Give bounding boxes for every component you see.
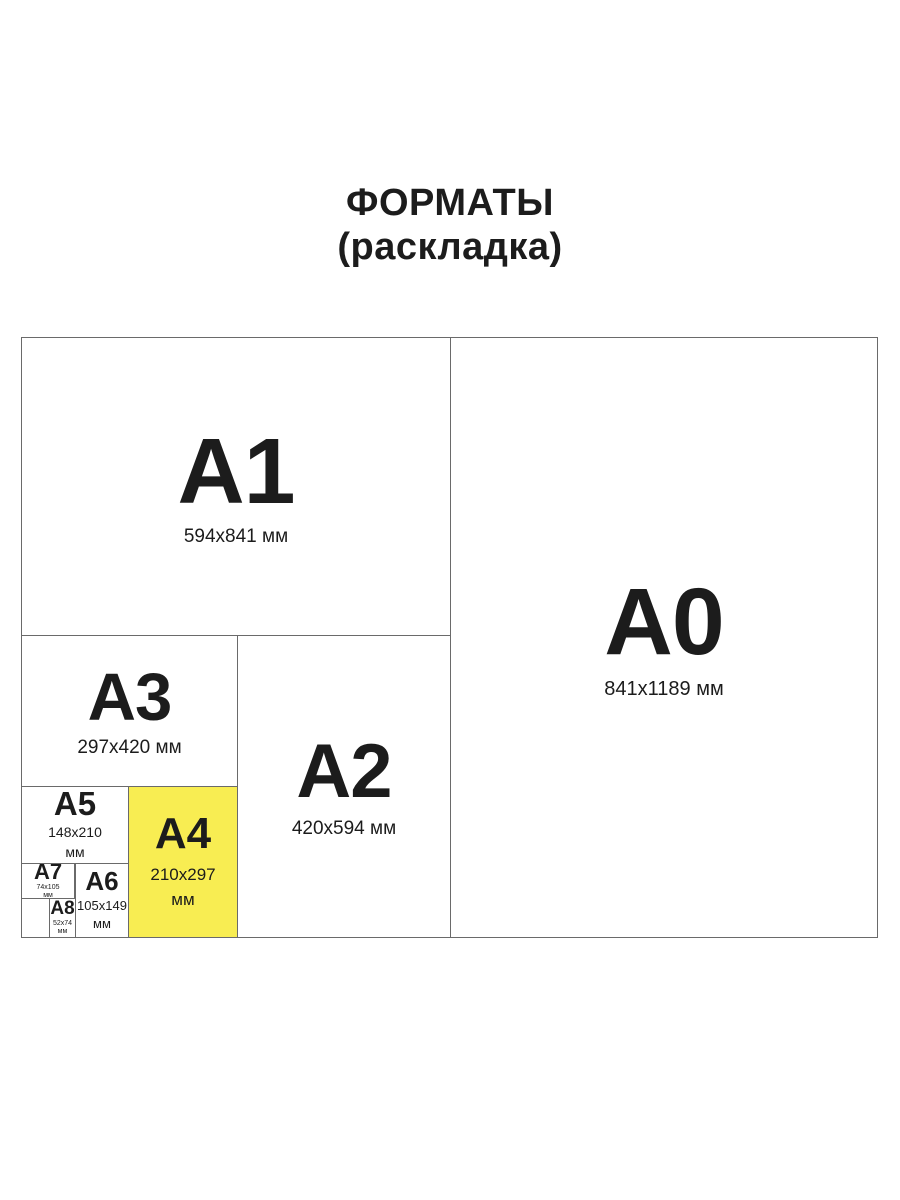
format-a8-dimensions: 52x74 мм	[53, 920, 72, 936]
format-a5-dimensions-line1: 148x210	[48, 823, 102, 843]
format-a7-dimensions-line2: мм	[37, 892, 60, 899]
format-a7-dimensions-line1: 74x105	[37, 884, 60, 892]
format-box-a5: A5 148x210 мм	[22, 787, 128, 864]
paper-formats-poster: ФОРМАТЫ (раскладка) A0 841x1189 мм A1 59…	[0, 0, 900, 1200]
page-title-line2: (раскладка)	[0, 225, 900, 269]
format-a3-dimensions: 297x420 мм	[77, 737, 181, 759]
format-a8-label: A8	[50, 900, 74, 917]
page-title-line1: ФОРМАТЫ	[0, 181, 900, 225]
format-a5-dimensions-line2: мм	[48, 843, 102, 863]
format-box-a4-highlighted: A4 210x297 мм	[128, 787, 237, 937]
format-box-a3: A3 297x420 мм	[22, 636, 237, 787]
format-a7-dimensions: 74x105 мм	[37, 884, 60, 899]
format-a1-label: A1	[178, 425, 295, 518]
format-box-a8: A8 52x74 мм	[49, 899, 75, 937]
format-box-a2: A2 420x594 мм	[237, 636, 450, 937]
format-a6-label: A6	[85, 868, 118, 894]
format-a6-dimensions-line2: мм	[77, 915, 127, 933]
format-box-a0: A0 841x1189 мм	[450, 338, 877, 937]
format-a0-label: A0	[604, 575, 723, 670]
paper-format-diagram: A0 841x1189 мм A1 594x841 мм A3 297x420 …	[21, 337, 878, 938]
format-a7-label: A7	[34, 864, 62, 882]
format-a3-label: A3	[88, 664, 172, 731]
format-a2-label: A2	[296, 734, 391, 810]
format-a4-label: A4	[155, 812, 211, 856]
format-a5-dimensions: 148x210 мм	[48, 823, 102, 862]
format-a6-dimensions-line1: 105x149	[77, 897, 127, 915]
format-a4-dimensions-line2: мм	[150, 887, 215, 913]
format-a0-dimensions: 841x1189 мм	[604, 678, 723, 701]
format-a5-label: A5	[54, 787, 96, 820]
format-box-a6: A6 105x149 мм	[75, 864, 128, 937]
format-a8-dimensions-line2: мм	[53, 928, 72, 936]
format-a4-dimensions-line1: 210x297	[150, 862, 215, 888]
format-a6-dimensions: 105x149 мм	[77, 897, 127, 933]
format-box-a7: A7 74x105 мм	[22, 864, 75, 899]
format-box-a1: A1 594x841 мм	[22, 338, 450, 636]
format-a1-dimensions: 594x841 мм	[184, 526, 288, 548]
format-a4-dimensions: 210x297 мм	[150, 862, 215, 913]
format-a2-dimensions: 420x594 мм	[292, 818, 396, 840]
format-a8-dimensions-line1: 52x74	[53, 920, 72, 928]
page-title: ФОРМАТЫ (раскладка)	[0, 181, 900, 269]
